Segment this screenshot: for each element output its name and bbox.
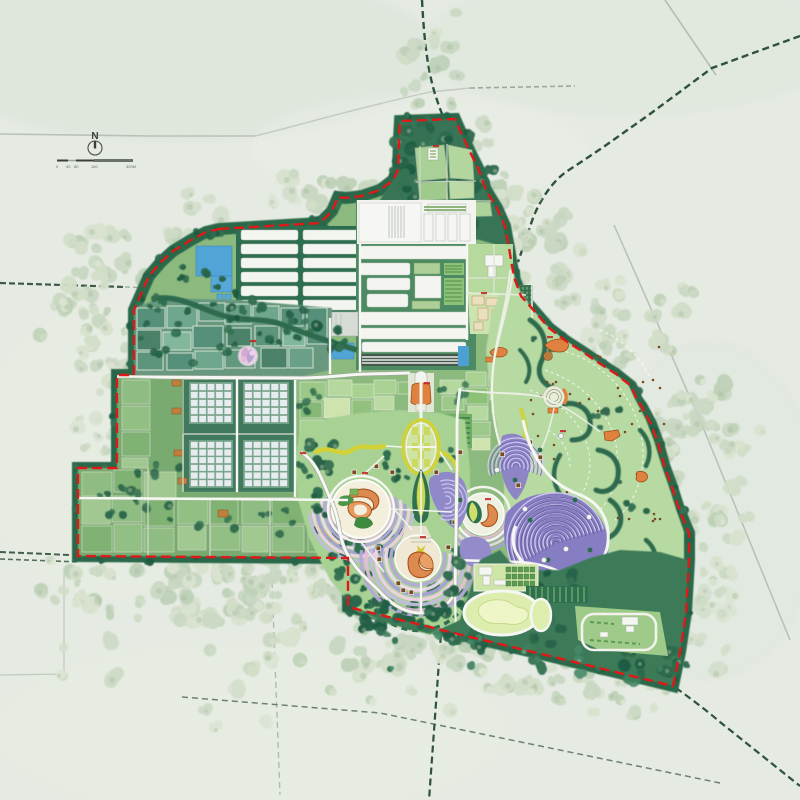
svg-text:80: 80 [74, 164, 79, 169]
svg-text:160: 160 [91, 164, 98, 169]
svg-text:N: N [91, 131, 98, 142]
svg-text:40: 40 [66, 164, 71, 169]
svg-text:320M: 320M [126, 164, 136, 169]
